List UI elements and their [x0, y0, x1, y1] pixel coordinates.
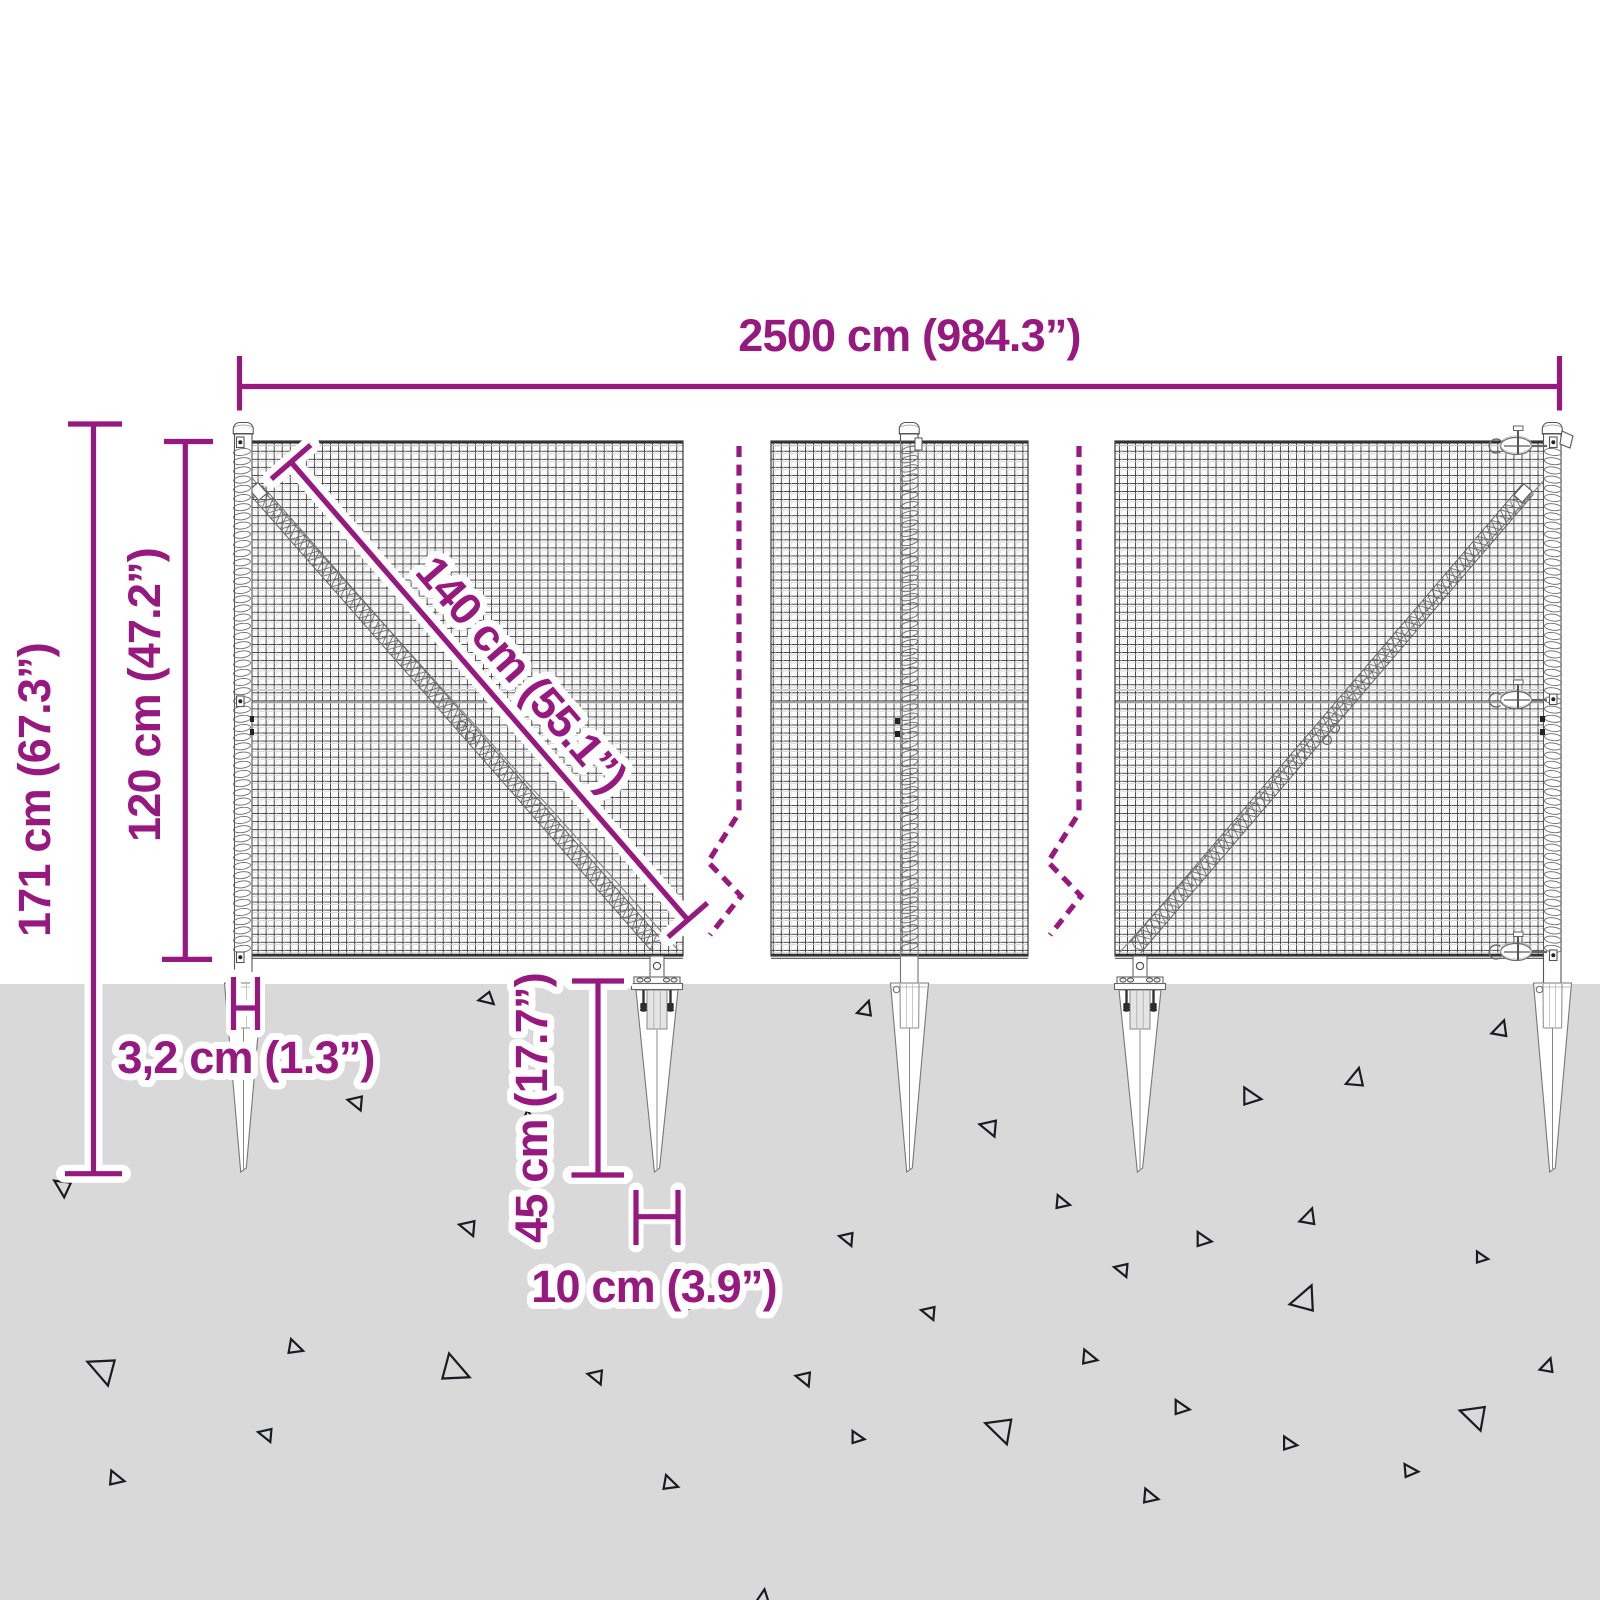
svg-text:120 cm (47.2”): 120 cm (47.2”) — [119, 548, 170, 842]
svg-text:2500 cm (984.3”): 2500 cm (984.3”) — [738, 310, 1080, 361]
svg-text:10 cm (3.9”): 10 cm (3.9”) — [531, 1261, 777, 1312]
svg-text:3,2 cm (1.3”): 3,2 cm (1.3”) — [117, 1032, 374, 1083]
svg-text:45 cm (17.7”): 45 cm (17.7”) — [506, 973, 557, 1243]
svg-text:171 cm (67.3”): 171 cm (67.3”) — [9, 643, 60, 937]
